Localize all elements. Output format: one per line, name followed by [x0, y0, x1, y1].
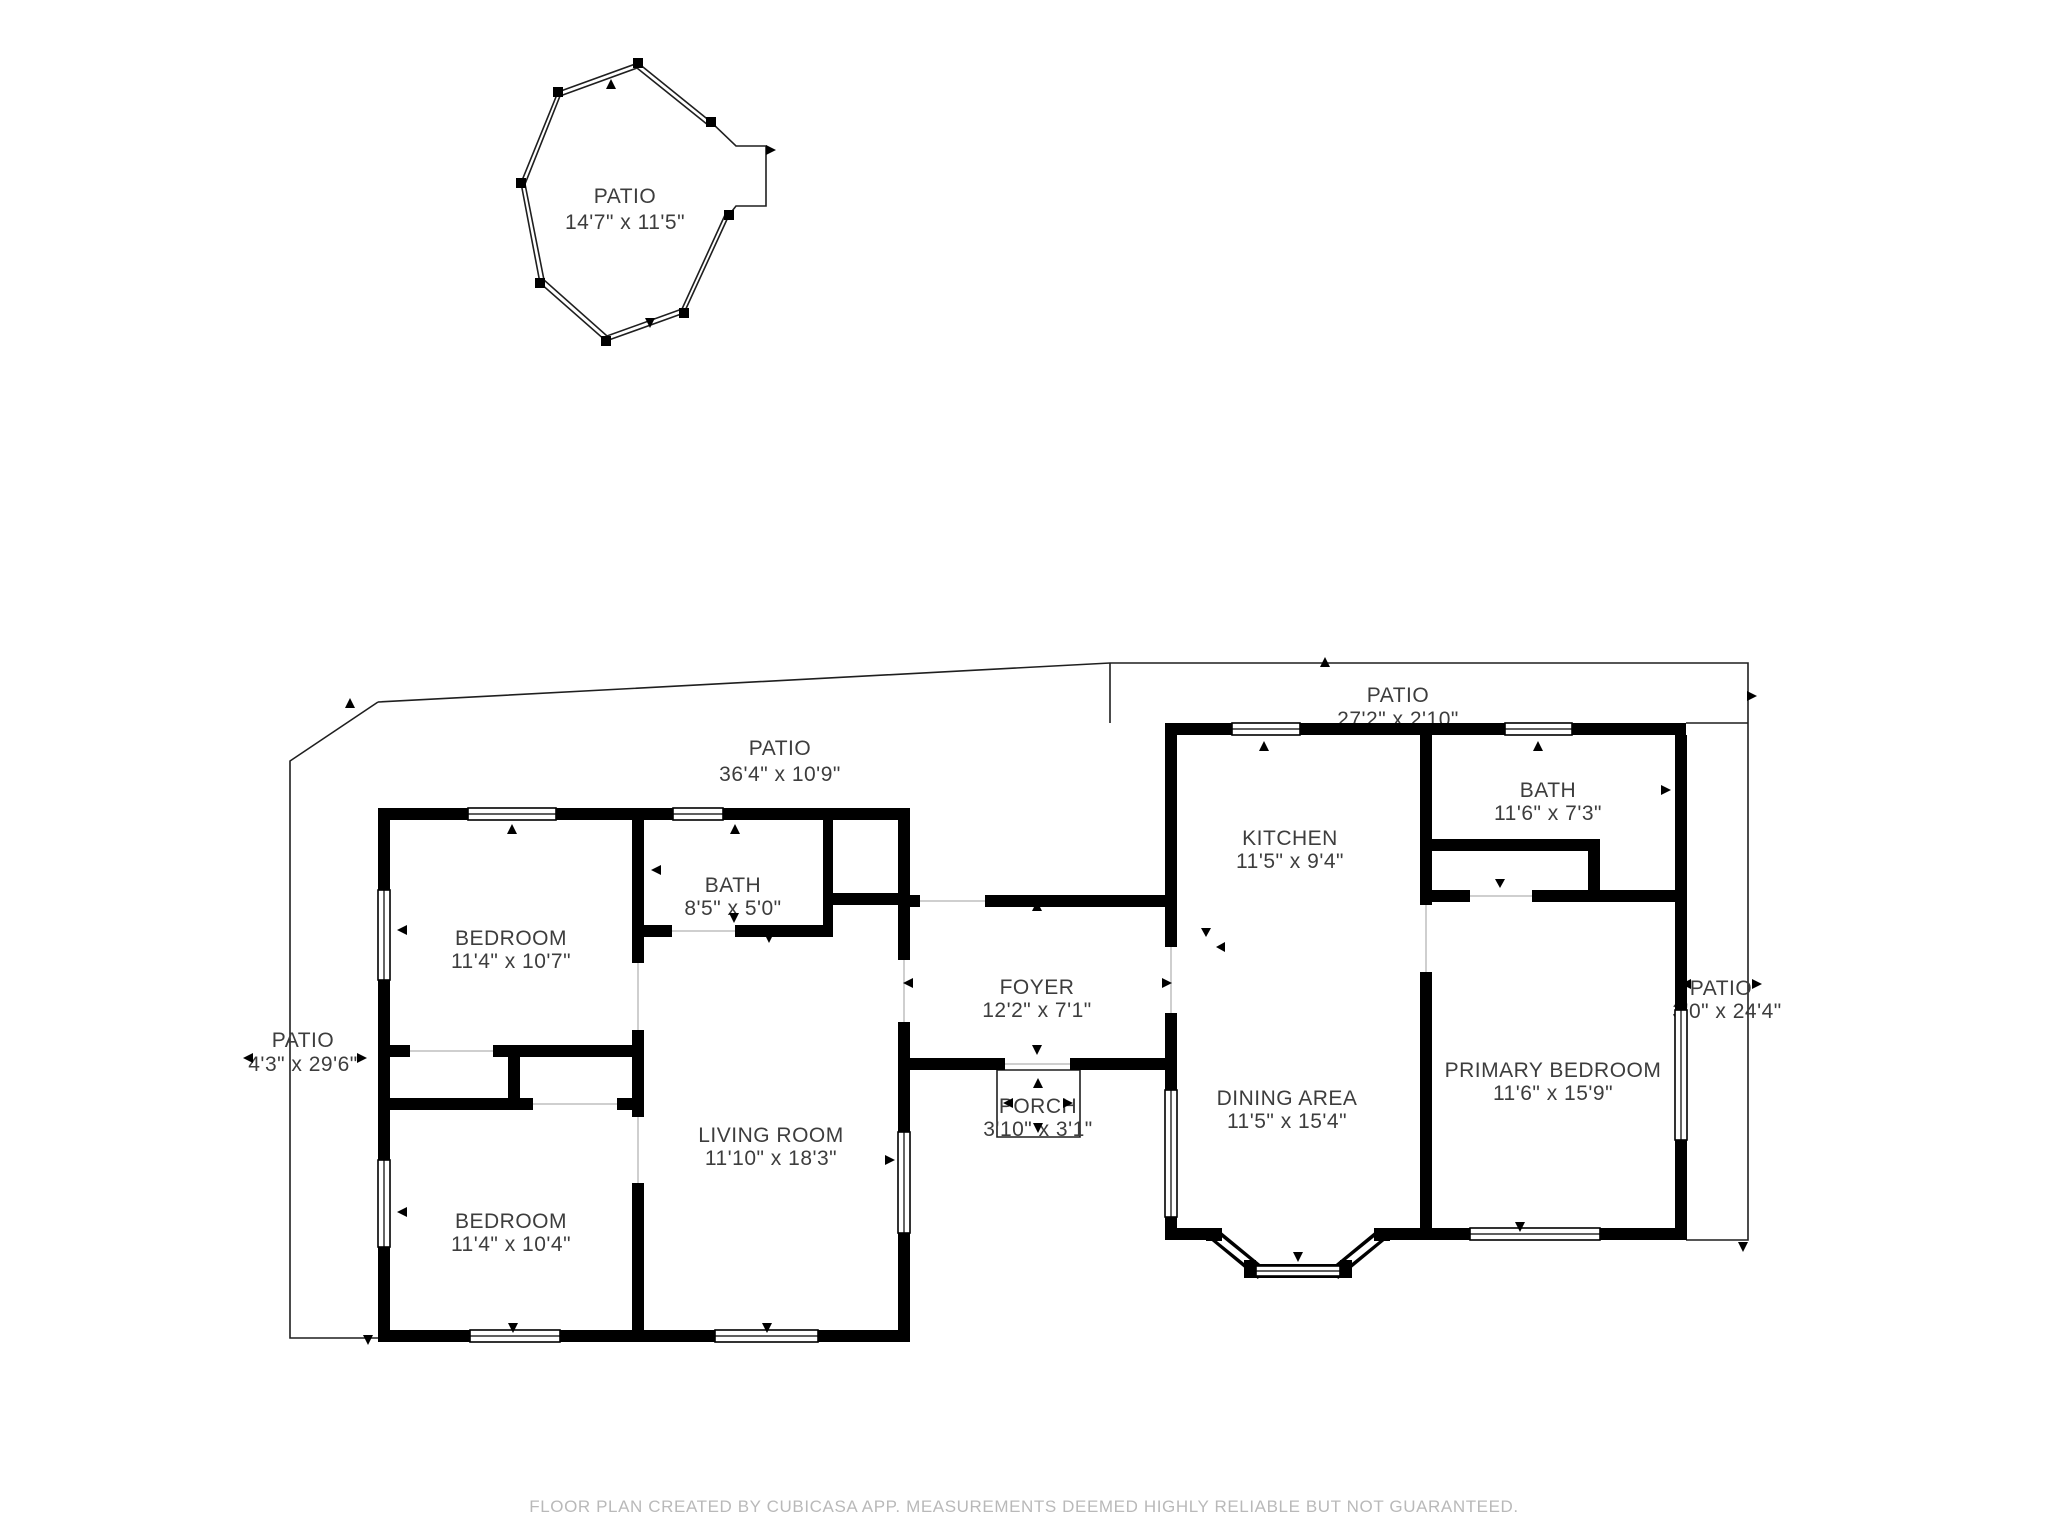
window — [898, 1132, 910, 1233]
bedroom-2-dims: 11'4" x 10'4" — [451, 1233, 571, 1256]
floor-plan-page: PATIO 14'7" x 11'5" PATIO 36'4" x 10'9" … — [0, 0, 2048, 1536]
kitchen-dims: 11'5" x 9'4" — [1236, 850, 1344, 873]
window — [1505, 723, 1572, 735]
window — [1675, 1010, 1687, 1140]
window — [470, 1330, 560, 1342]
dining-area-dims: 11'5" x 15'4" — [1227, 1110, 1347, 1133]
window — [1165, 1090, 1177, 1217]
window — [1232, 723, 1300, 735]
floor-plan-drawing: PATIO 14'7" x 11'5" PATIO 36'4" x 10'9" … — [0, 0, 2048, 1536]
patio-left-label: PATIO — [272, 1029, 334, 1052]
kitchen-label: KITCHEN — [1242, 827, 1338, 850]
living-room-label: LIVING ROOM — [698, 1124, 844, 1147]
patio-right-label: PATIO — [1690, 977, 1752, 1000]
dining-area-label: DINING AREA — [1217, 1087, 1358, 1110]
bath-right-label: BATH — [1520, 779, 1576, 802]
window — [378, 890, 390, 980]
patio-right-dims: 3'0" x 24'4" — [1672, 1000, 1782, 1023]
patio-octagon-label: PATIO — [594, 185, 656, 208]
bath-left-label: BATH — [705, 874, 761, 897]
patio-top-label: PATIO — [749, 737, 811, 760]
foyer-label: FOYER — [1000, 976, 1075, 999]
window — [378, 1160, 390, 1247]
direction-arrows — [243, 79, 1762, 1345]
door-thresholds — [410, 896, 1532, 1183]
bedroom-1-label: BEDROOM — [455, 927, 567, 950]
bath-right-dims: 11'6" x 7'3" — [1494, 802, 1602, 825]
window — [468, 808, 556, 820]
living-room-dims: 11'10" x 18'3" — [705, 1147, 837, 1170]
bedroom-2-label: BEDROOM — [455, 1210, 567, 1233]
patio-top-right-label: PATIO — [1367, 684, 1429, 707]
window — [1470, 1228, 1600, 1240]
patio-top-dims: 36'4" x 10'9" — [719, 763, 841, 786]
primary-bedroom-label: PRIMARY BEDROOM — [1445, 1059, 1662, 1082]
foyer-dims: 12'2" x 7'1" — [982, 999, 1092, 1022]
footer-disclaimer: FLOOR PLAN CREATED BY CUBICASA APP. MEAS… — [529, 1497, 1519, 1516]
patio-octagon-dims: 14'7" x 11'5" — [565, 211, 685, 234]
primary-bedroom-dims: 11'6" x 15'9" — [1493, 1082, 1613, 1105]
window — [673, 808, 723, 820]
walls — [378, 723, 1687, 1342]
patio-left-dims: 4'3" x 29'6" — [248, 1053, 358, 1076]
bedroom-1-dims: 11'4" x 10'7" — [451, 950, 571, 973]
room-labels: PATIO 14'7" x 11'5" PATIO 36'4" x 10'9" … — [248, 185, 1782, 1256]
